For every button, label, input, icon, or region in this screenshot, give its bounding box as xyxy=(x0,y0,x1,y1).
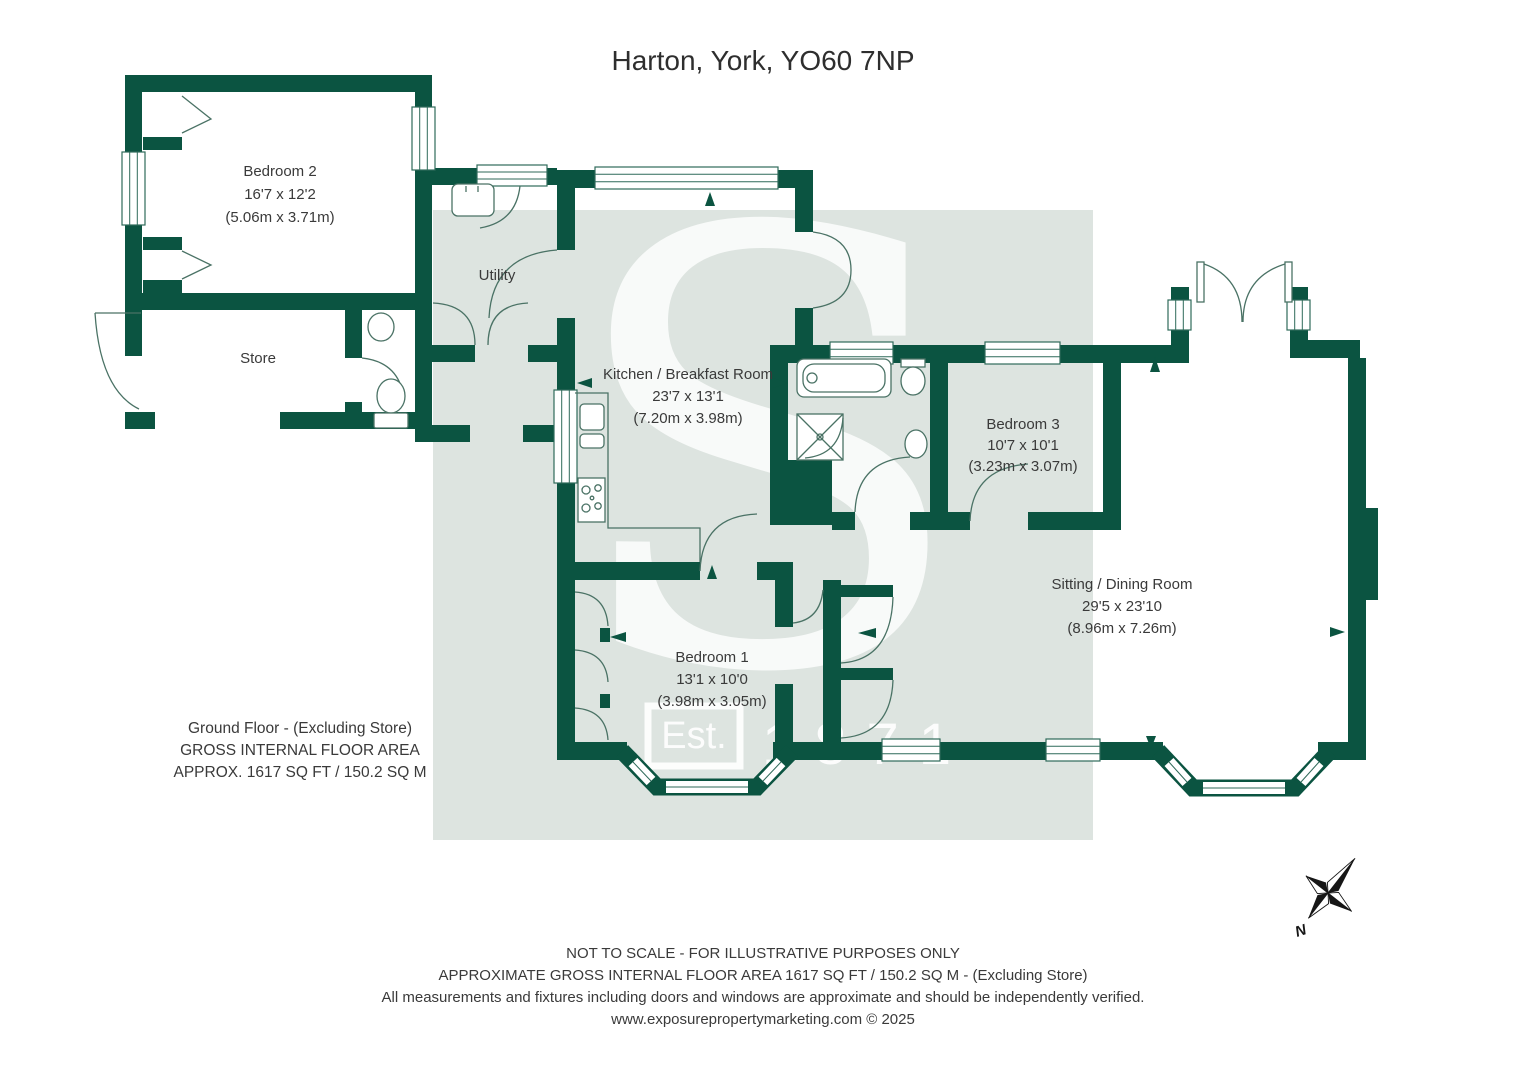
floorplan-canvas: S Est. 1871 xyxy=(0,0,1527,1080)
footer-line3: All measurements and fixtures including … xyxy=(382,989,1145,1006)
bathroom-basin xyxy=(905,430,927,458)
floor-summary-line2: GROSS INTERNAL FLOOR AREA xyxy=(180,742,420,759)
floor-summary-line1: Ground Floor - (Excluding Store) xyxy=(188,720,412,737)
watermark-est-label: Est. xyxy=(661,715,726,757)
wc-toilet-bowl xyxy=(377,379,405,413)
bedroom2-metric: (5.06m x 3.71m) xyxy=(225,209,334,226)
sitting-imperial: 29'5 x 23'10 xyxy=(1082,598,1162,615)
floor-summary-line3: APPROX. 1617 SQ FT / 150.2 SQ M xyxy=(174,764,427,781)
bedroom2-imperial: 16'7 x 12'2 xyxy=(244,186,316,203)
floorplan-page: S Est. 1871 xyxy=(0,0,1527,1080)
bedroom3-metric: (3.23m x 3.07m) xyxy=(968,458,1077,475)
wc-basin xyxy=(368,313,394,341)
kitchen-imperial: 23'7 x 13'1 xyxy=(652,388,724,405)
footer-line1: NOT TO SCALE - FOR ILLUSTRATIVE PURPOSES… xyxy=(566,945,960,962)
sitting-french-doors-arcs xyxy=(1204,264,1285,322)
sitting-name: Sitting / Dining Room xyxy=(1052,576,1193,593)
utility-sink xyxy=(452,184,494,216)
bedroom3-name: Bedroom 3 xyxy=(986,416,1059,433)
kitchen-metric: (7.20m x 3.98m) xyxy=(633,410,742,427)
bedroom1-metric: (3.98m x 3.05m) xyxy=(657,693,766,710)
french-door-leaf-left xyxy=(1197,262,1204,302)
bedroom2-name: Bedroom 2 xyxy=(243,163,316,180)
bedroom3-imperial: 10'7 x 10'1 xyxy=(987,437,1059,454)
footer-line2: APPROXIMATE GROSS INTERNAL FLOOR AREA 16… xyxy=(438,967,1087,984)
bathroom-toilet-cistern xyxy=(901,359,925,367)
store-name: Store xyxy=(240,350,276,367)
page-title: Harton, York, YO60 7NP xyxy=(612,45,915,76)
kitchen-name: Kitchen / Breakfast Room xyxy=(603,366,773,383)
footer-line4: www.exposurepropertymarketing.com © 2025 xyxy=(610,1011,915,1028)
bedroom1-name: Bedroom 1 xyxy=(675,649,748,666)
bedroom1-imperial: 13'1 x 10'0 xyxy=(676,671,748,688)
sitting-metric: (8.96m x 7.26m) xyxy=(1067,620,1176,637)
bathroom-toilet-bowl xyxy=(901,367,925,395)
compass-rose: N xyxy=(1286,841,1378,941)
compass-north-label: N xyxy=(1293,921,1310,941)
wc-toilet-cistern xyxy=(374,413,408,428)
french-door-leaf-right xyxy=(1285,262,1292,302)
kitchen-sink xyxy=(580,404,604,430)
utility-name: Utility xyxy=(479,267,516,284)
bedroom2-closet-doors xyxy=(182,96,211,279)
